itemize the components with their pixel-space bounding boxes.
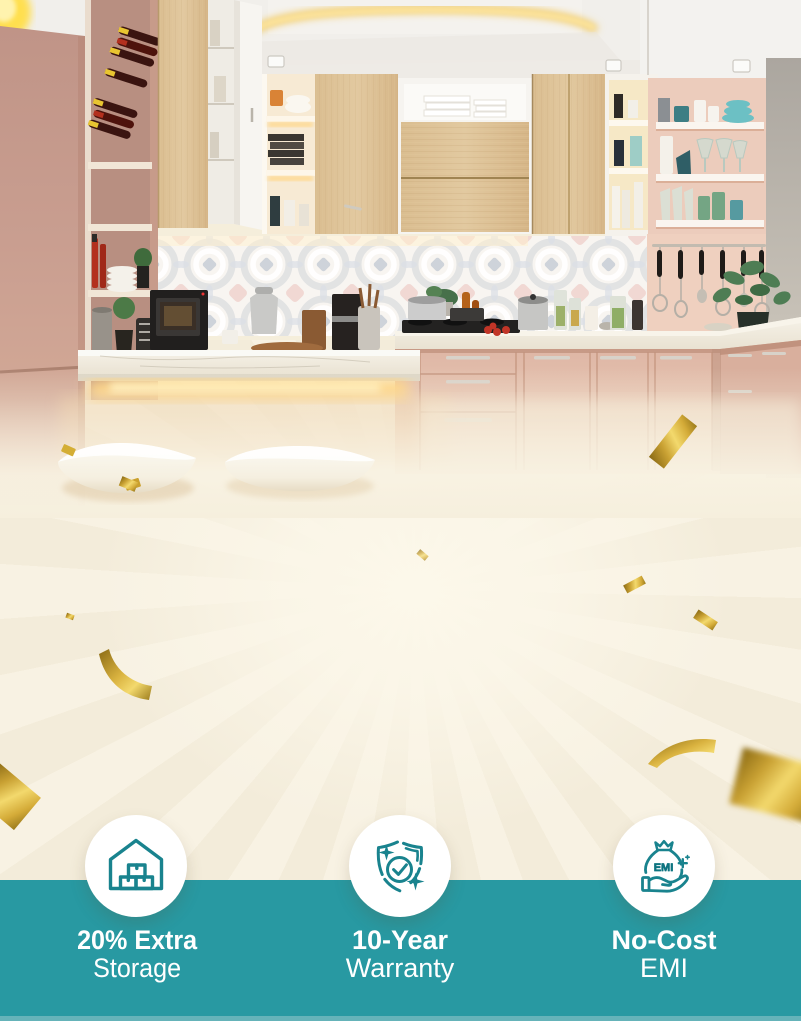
svg-text:EMI: EMI [654, 862, 674, 874]
